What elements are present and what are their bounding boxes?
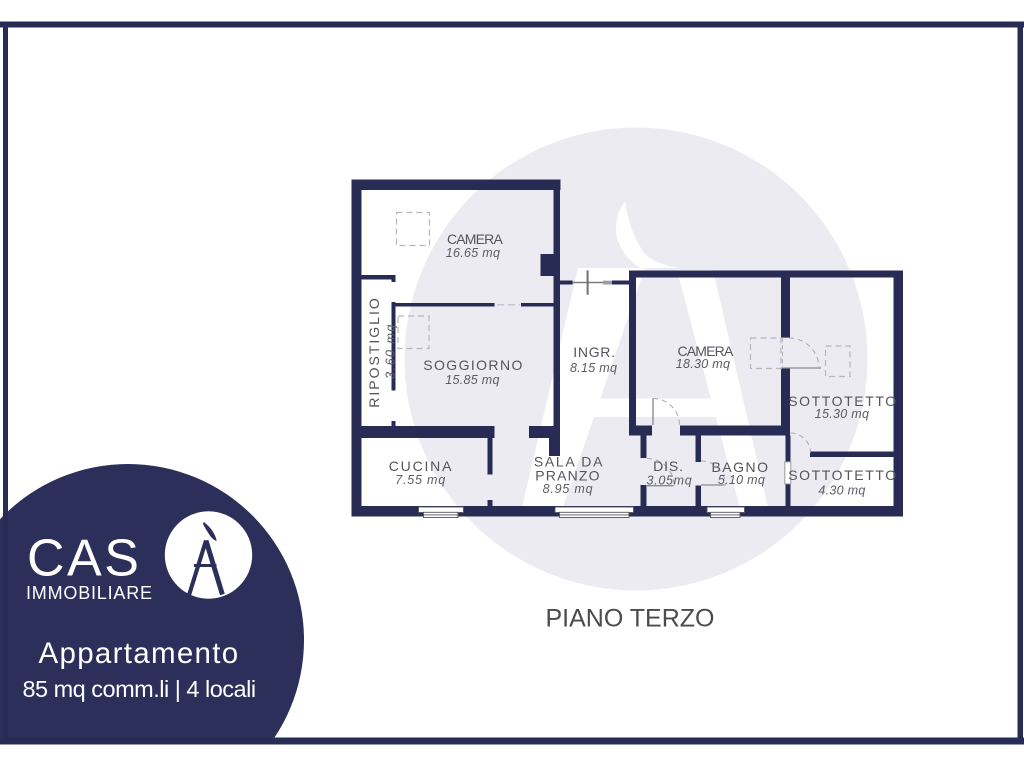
svg-text:15.85 mq: 15.85 mq (445, 373, 500, 387)
svg-text:8.15 mq: 8.15 mq (570, 361, 617, 375)
svg-text:RIPOSTIGLIO: RIPOSTIGLIO (366, 296, 382, 407)
svg-text:PIANO TERZO: PIANO TERZO (545, 605, 714, 633)
svg-text:CAS: CAS (27, 530, 141, 588)
svg-text:3.60 mq: 3.60 mq (384, 323, 398, 379)
svg-text:IMMOBILIARE: IMMOBILIARE (26, 583, 153, 603)
svg-text:8.95 mq: 8.95 mq (543, 482, 594, 496)
svg-text:SOGGIORNO: SOGGIORNO (423, 357, 524, 373)
svg-text:16.65 mq: 16.65 mq (446, 246, 501, 260)
svg-text:5.10 mq: 5.10 mq (718, 473, 765, 487)
svg-text:DIS.: DIS. (653, 458, 684, 474)
svg-text:SOTTOTETTO: SOTTOTETTO (788, 467, 898, 483)
svg-text:18.30 mq: 18.30 mq (676, 357, 731, 371)
svg-text:85 mq comm.li | 4 locali: 85 mq comm.li | 4 locali (22, 676, 255, 702)
svg-text:7.55 mq: 7.55 mq (395, 473, 446, 487)
svg-text:15.30 mq: 15.30 mq (815, 407, 870, 421)
svg-text:3.05mq: 3.05mq (647, 474, 693, 488)
svg-text:4.30 mq: 4.30 mq (818, 483, 865, 497)
svg-text:CAMERA: CAMERA (447, 231, 504, 247)
svg-text:CUCINA: CUCINA (389, 458, 453, 474)
svg-text:INGR.: INGR. (573, 344, 615, 360)
svg-text:Appartamento: Appartamento (39, 637, 240, 670)
